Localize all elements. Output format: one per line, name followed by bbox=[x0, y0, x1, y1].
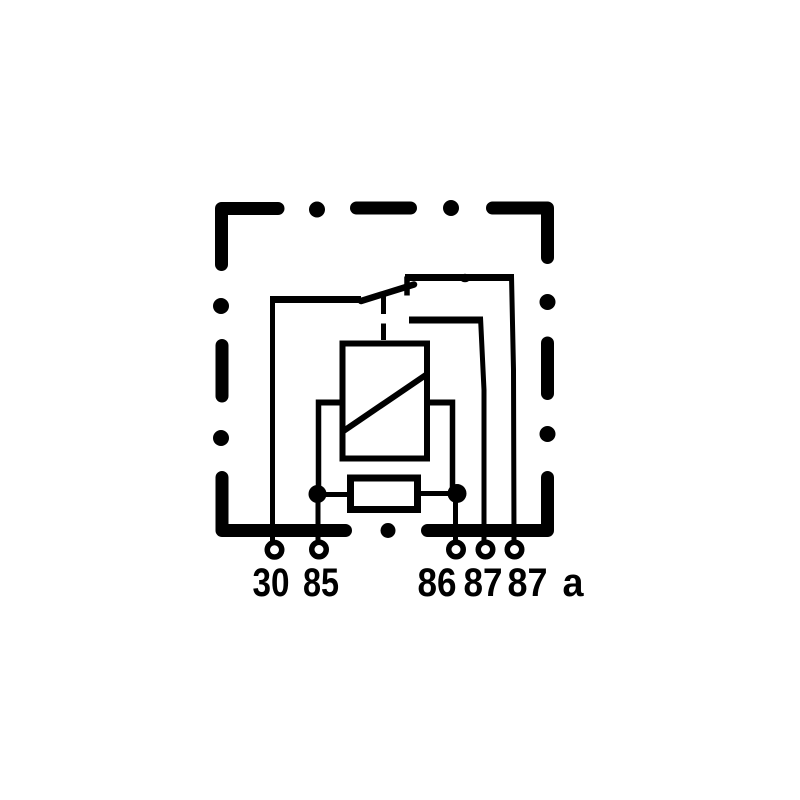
svg-text:30: 30 bbox=[253, 561, 290, 605]
svg-text:86: 86 bbox=[418, 561, 457, 605]
svg-text:a: a bbox=[563, 561, 585, 605]
svg-text:85: 85 bbox=[303, 561, 339, 605]
svg-text:87: 87 bbox=[508, 561, 548, 605]
svg-text:87: 87 bbox=[464, 561, 503, 605]
